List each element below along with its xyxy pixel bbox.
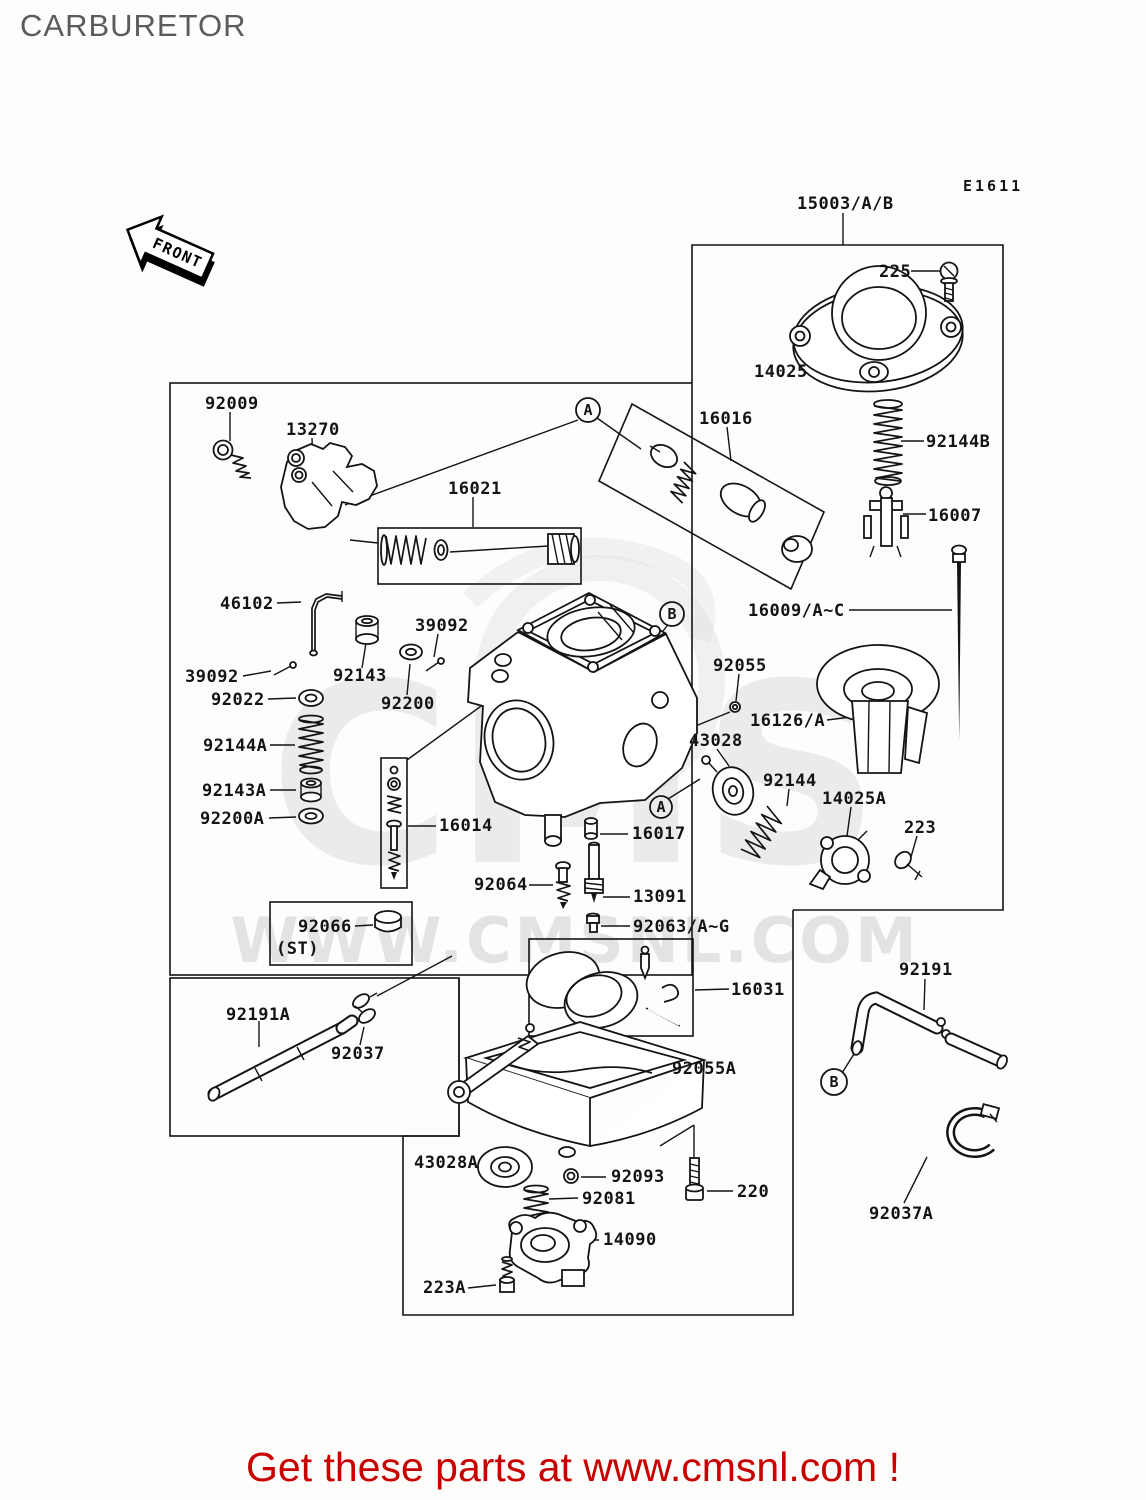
label-92144[interactable]: 92144 [763, 771, 817, 791]
label-16016[interactable]: 16016 [699, 409, 753, 429]
footer-cta-link[interactable]: Get these parts at www.cmsnl.com ! [0, 1444, 1146, 1491]
label-15003[interactable]: 15003/A/B [797, 194, 894, 214]
part-screw-223 [892, 849, 922, 880]
label-13091[interactable]: 13091 [633, 887, 687, 907]
label-16014[interactable]: 16014 [439, 816, 493, 836]
svg-text:B: B [667, 605, 676, 623]
part-washer-92200 [400, 645, 422, 660]
carburetor-diagram: CMS WWW.CMSNL.COM E1611 FRONT [0, 0, 1146, 1500]
marker-a-top: A [576, 398, 600, 422]
marker-b-hose: B [821, 1069, 847, 1095]
label-14025A[interactable]: 14025A [822, 789, 886, 809]
label-92063[interactable]: 92063/A~G [633, 917, 730, 937]
part-oring-92055-dot [730, 702, 740, 712]
label-220[interactable]: 220 [737, 1182, 769, 1202]
label-14090[interactable]: 14090 [603, 1230, 657, 1250]
label-16021[interactable]: 16021 [448, 479, 502, 499]
label-16126[interactable]: 16126/A [750, 711, 825, 731]
label-92009[interactable]: 92009 [205, 394, 259, 414]
label-92200[interactable]: 92200 [381, 694, 435, 714]
label-92055A[interactable]: 92055A [672, 1059, 736, 1079]
part-jet-16017 [585, 818, 597, 839]
part-needle-holder-16007 [864, 487, 908, 557]
part-washer-92022 [299, 690, 323, 706]
label-46102[interactable]: 46102 [220, 594, 274, 614]
label-13270[interactable]: 13270 [286, 420, 340, 440]
label-43028A[interactable]: 43028A [414, 1153, 478, 1173]
parts-fiche-page: CARBURETOR CMS WWW.CMSNL.COM E1611 FRONT [0, 0, 1146, 1500]
part-screw-220 [686, 1158, 703, 1200]
label-92200A[interactable]: 92200A [200, 809, 264, 829]
part-screw-225 [941, 263, 958, 302]
label-92066[interactable]: 92066 [298, 917, 352, 937]
part-clamp-92037A [951, 1104, 999, 1153]
label-92081[interactable]: 92081 [582, 1189, 636, 1209]
svg-text:A: A [583, 401, 592, 419]
part-oring-92093 [564, 1169, 578, 1183]
box-fuel-pipe [170, 978, 459, 1136]
label-223[interactable]: 223 [904, 818, 936, 838]
part-spring-92144B [874, 400, 902, 485]
label-92191[interactable]: 92191 [899, 960, 953, 980]
front-arrow-icon: FRONT [114, 206, 223, 298]
label-92093[interactable]: 92093 [611, 1167, 665, 1187]
part-washer-92200A [299, 809, 323, 824]
label-14025[interactable]: 14025 [754, 362, 808, 382]
label-39092-left[interactable]: 39092 [185, 667, 239, 687]
label-92064[interactable]: 92064 [474, 875, 528, 895]
label-16009[interactable]: 16009/A~C [748, 601, 845, 621]
label-92037A[interactable]: 92037A [869, 1204, 933, 1224]
label-92066-st: (ST) [276, 939, 319, 959]
part-top-cover-14025 [788, 266, 968, 400]
diagram-code: E1611 [963, 177, 1023, 195]
label-92144B[interactable]: 92144B [926, 432, 990, 452]
label-92191A[interactable]: 92191A [226, 1005, 290, 1025]
label-92022[interactable]: 92022 [211, 690, 265, 710]
part-diaphragm-43028A [478, 1147, 532, 1187]
part-throttle-stop-kit-16021 [381, 534, 579, 565]
label-92143[interactable]: 92143 [333, 666, 387, 686]
part-plug-92066 [375, 911, 401, 932]
label-92144A[interactable]: 92144A [203, 736, 267, 756]
label-16031[interactable]: 16031 [731, 980, 785, 1000]
part-bracket-13270 [281, 443, 377, 529]
part-float-bowl-92055A [448, 1022, 704, 1157]
part-jet-needle-16009 [952, 546, 966, 741]
label-92055[interactable]: 92055 [713, 656, 767, 676]
svg-text:A: A [656, 798, 665, 816]
label-223A[interactable]: 223A [423, 1278, 466, 1298]
label-16007[interactable]: 16007 [928, 506, 982, 526]
label-225[interactable]: 225 [879, 262, 911, 282]
part-screw-92009 [214, 441, 252, 479]
part-hose-92191 [851, 998, 1009, 1070]
label-92037[interactable]: 92037 [331, 1044, 385, 1064]
label-39092-top[interactable]: 39092 [415, 616, 469, 636]
label-16017[interactable]: 16017 [632, 824, 686, 844]
label-43028[interactable]: 43028 [689, 731, 743, 751]
part-cover-14090 [509, 1213, 596, 1286]
svg-text:B: B [829, 1073, 838, 1091]
label-92143A[interactable]: 92143A [202, 781, 266, 801]
